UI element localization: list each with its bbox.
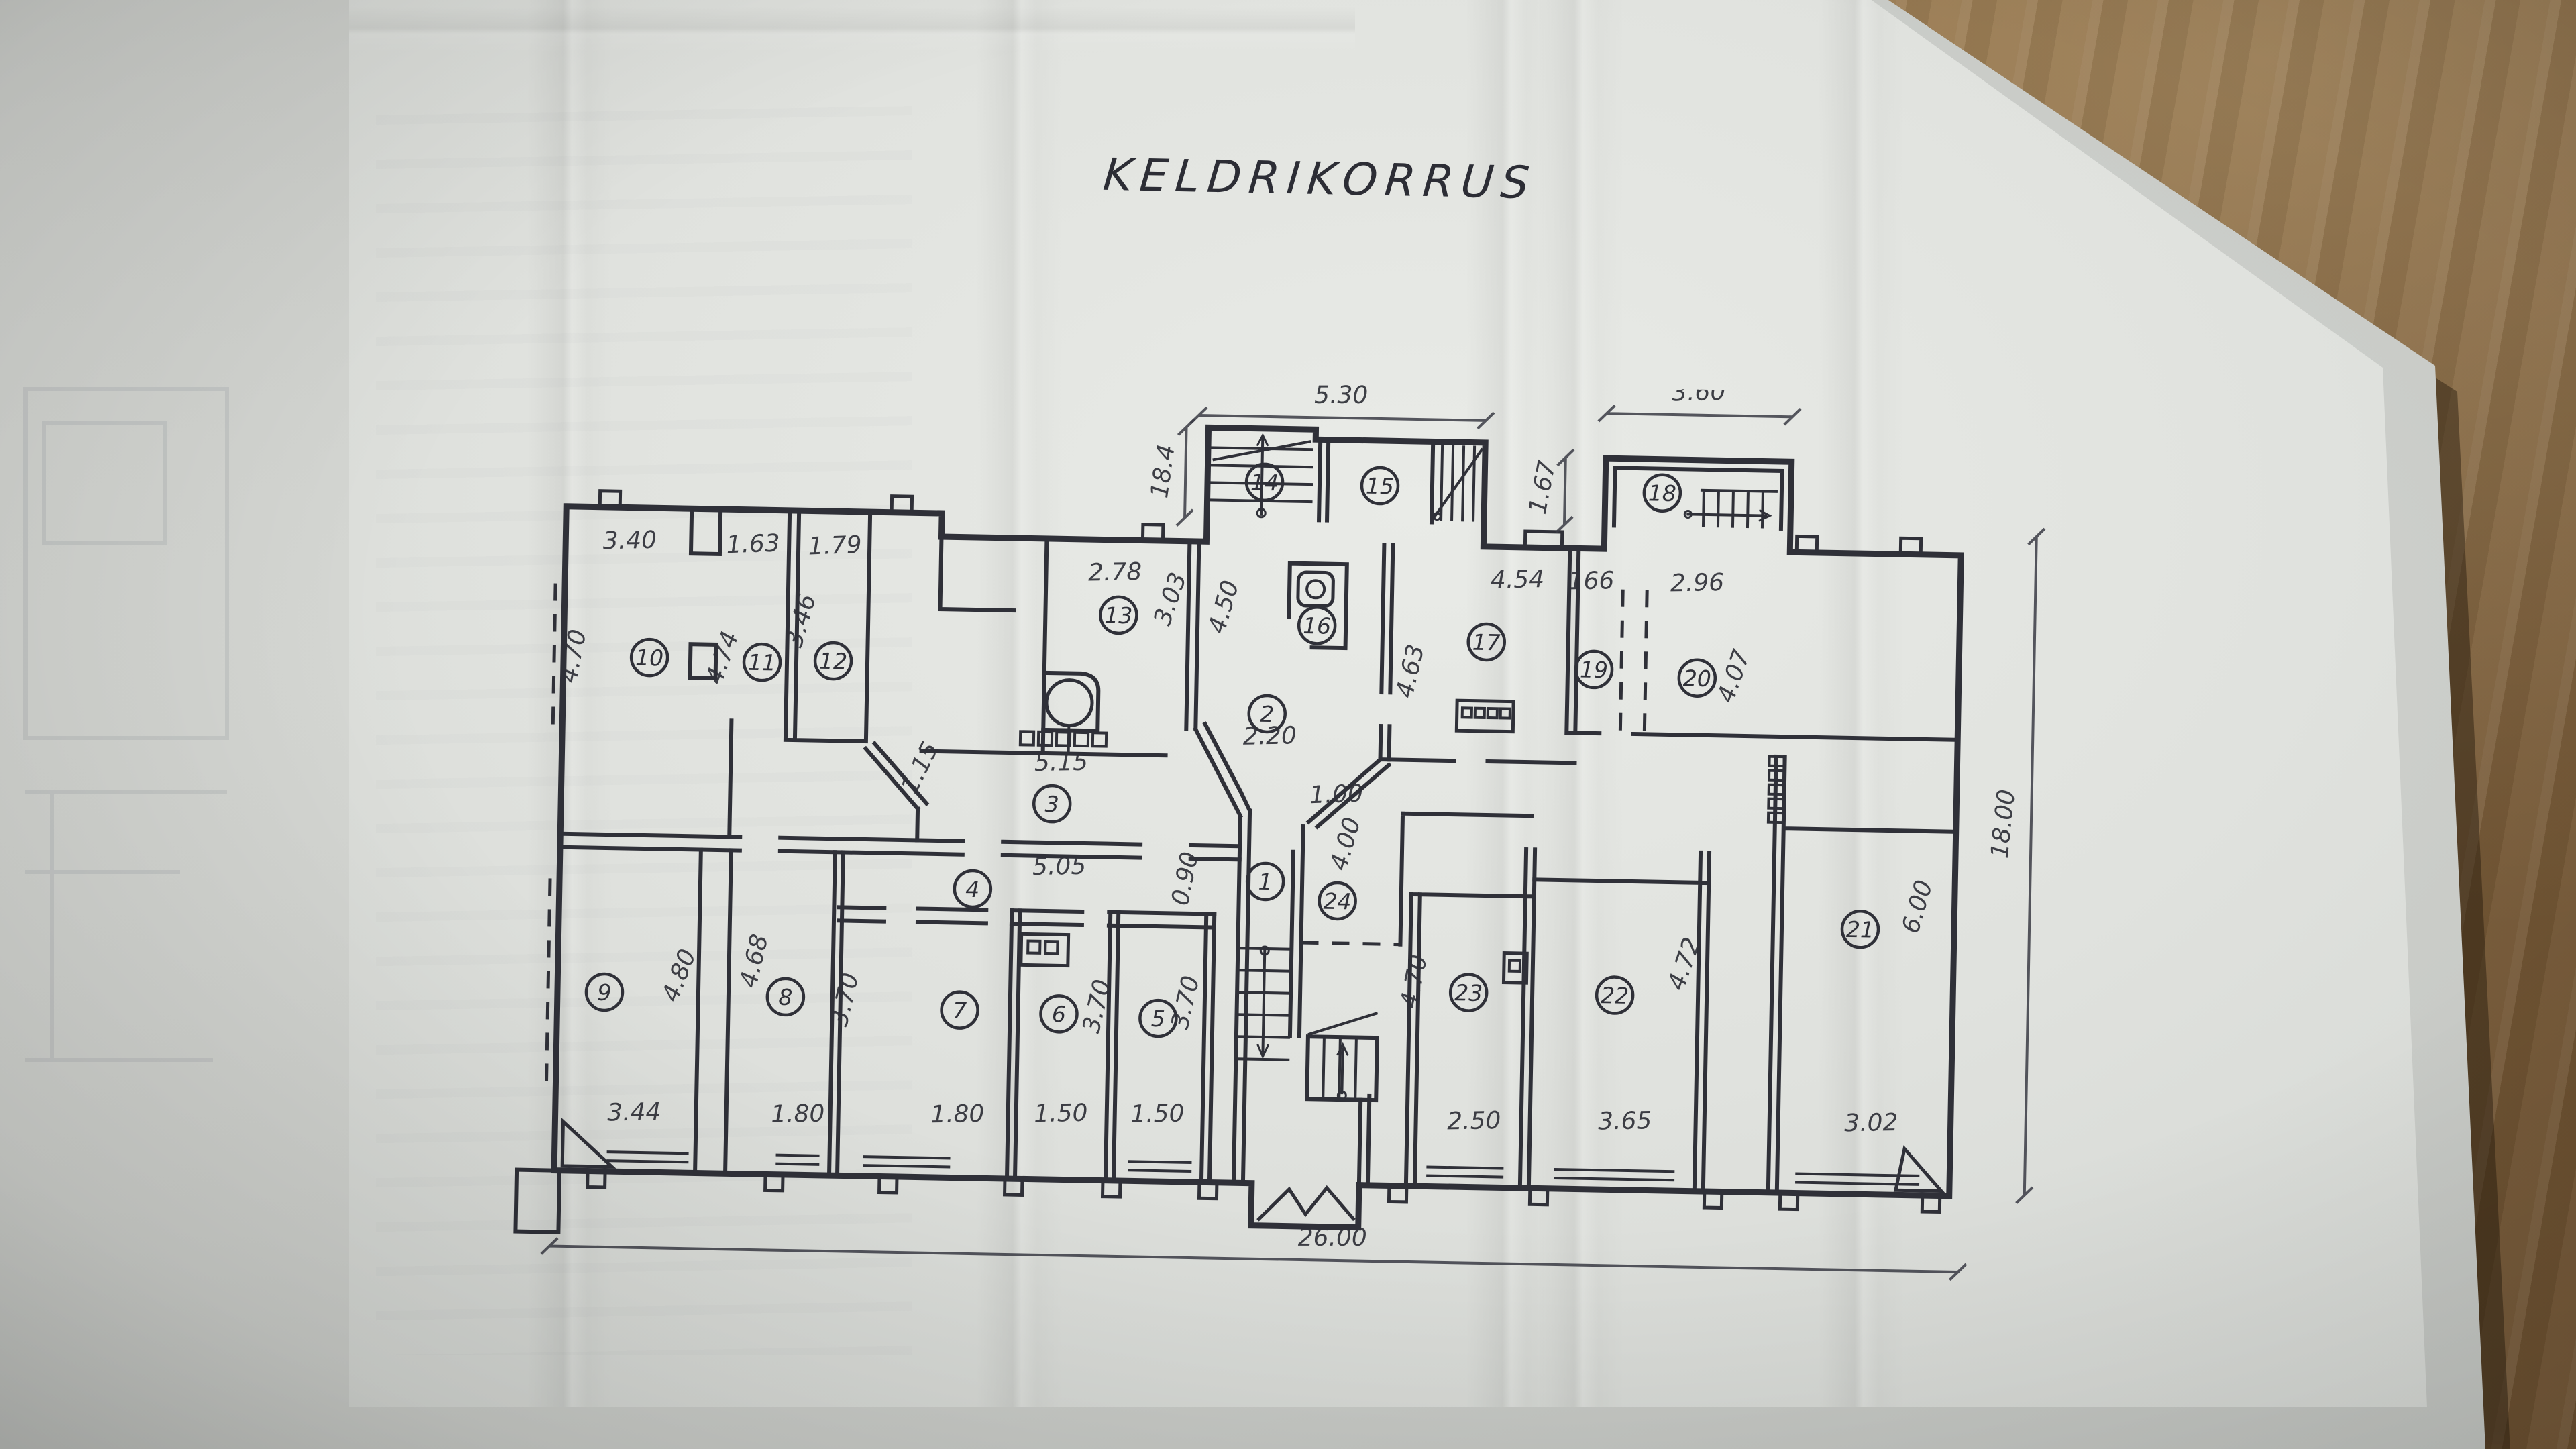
svg-text:4: 4: [965, 876, 980, 902]
dim-label-3.60: 3.60: [1672, 378, 1726, 407]
dim-label-4.70: 4.70: [555, 627, 592, 686]
photo-of-floor-plan: KELDRIKORRUS: [0, 0, 2576, 1449]
room-18-marker: 18: [1644, 474, 1680, 511]
room-6-marker: 6: [1040, 996, 1077, 1032]
under-sheet-ghost-drawing: [12, 362, 254, 1100]
dim-label-3.65: 3.65: [1598, 1107, 1652, 1135]
dim-label-2.50: 2.50: [1447, 1107, 1501, 1135]
dim-label-2.78: 2.78: [1088, 558, 1142, 586]
dim-label-5.30: 5.30: [1314, 382, 1368, 409]
svg-text:24: 24: [1323, 888, 1352, 915]
svg-text:8: 8: [778, 984, 793, 1010]
room-23-marker: 23: [1450, 974, 1487, 1011]
dim-label-3.40: 3.40: [602, 527, 657, 555]
svg-text:19: 19: [1580, 657, 1609, 684]
room-4-marker: 4: [954, 871, 991, 908]
svg-text:21: 21: [1846, 916, 1875, 943]
svg-text:17: 17: [1472, 629, 1501, 656]
dim-label-4.00: 4.00: [1325, 814, 1366, 873]
room-10-marker: 10: [631, 639, 668, 676]
svg-text:13: 13: [1104, 602, 1133, 629]
dim-label-2.20: 2.20: [1242, 722, 1297, 750]
drawing-title: KELDRIKORRUS: [1102, 149, 1539, 209]
dim-label-1.67: 1.67: [1524, 458, 1562, 517]
dim-label-0.90: 0.90: [1167, 850, 1204, 908]
room-11-marker: 11: [744, 644, 781, 681]
svg-text:5: 5: [1151, 1006, 1166, 1032]
dim-label-1.63: 1.63: [726, 530, 781, 559]
dim-label-2.96: 2.96: [1670, 569, 1725, 597]
room-14-marker: 14: [1246, 464, 1283, 500]
room-22-marker: 22: [1597, 977, 1633, 1014]
dim-label-4.80: 4.80: [657, 945, 702, 1006]
svg-text:7: 7: [953, 997, 967, 1023]
dim-label-4.07: 4.07: [1712, 647, 1756, 706]
dim-label-1.80: 1.80: [930, 1100, 985, 1128]
dim-label-4.74: 4.74: [701, 628, 745, 688]
dim-label-3.70: 3.70: [1167, 973, 1205, 1032]
room-15-marker: 15: [1362, 468, 1399, 504]
dim-label-1.00: 1.00: [1309, 780, 1364, 810]
svg-text:15: 15: [1366, 473, 1395, 500]
dim-label-4.54: 4.54: [1491, 566, 1545, 594]
room-24-marker: 24: [1319, 882, 1356, 919]
dimension-lines: [541, 386, 2047, 1281]
svg-text:22: 22: [1601, 982, 1629, 1009]
dim-label-4.50: 4.50: [1203, 578, 1245, 637]
room-8-marker: 8: [767, 978, 804, 1015]
dim-label-1.80: 1.80: [771, 1100, 825, 1128]
svg-text:20: 20: [1682, 665, 1711, 692]
room-1-marker: 1: [1247, 863, 1284, 900]
room-3-marker: 3: [1034, 786, 1071, 822]
room-12-marker: 12: [815, 643, 852, 680]
dim-label-3.44: 3.44: [607, 1098, 661, 1126]
svg-text:16: 16: [1303, 612, 1332, 639]
svg-text:14: 14: [1250, 469, 1279, 496]
room-20-marker: 20: [1678, 659, 1715, 696]
svg-text:6: 6: [1052, 1001, 1067, 1027]
dim-label-3.02: 3.02: [1844, 1109, 1898, 1137]
svg-text:3: 3: [1044, 791, 1059, 817]
dim-label-18.4: 18.4: [1146, 443, 1181, 500]
room-13-marker: 13: [1100, 596, 1137, 633]
svg-text:18: 18: [1648, 480, 1677, 506]
svg-text:11: 11: [748, 649, 777, 676]
room-21-marker: 21: [1842, 911, 1879, 948]
dim-label-4.70: 4.70: [1395, 953, 1433, 1011]
dim-label-26.00: 26.00: [1298, 1224, 1367, 1252]
paper-fold-crease-horizontal: [349, 7, 1355, 54]
dim-label-18.00: 18.00: [1986, 788, 2021, 860]
svg-text:12: 12: [819, 648, 848, 675]
dim-label-3.70: 3.70: [1077, 977, 1116, 1035]
svg-text:9: 9: [597, 979, 612, 1006]
dim-label-5.05: 5.05: [1032, 853, 1087, 881]
dim-label-1.50: 1.50: [1034, 1099, 1088, 1128]
dim-label-1.50: 1.50: [1130, 1099, 1185, 1128]
svg-text:10: 10: [635, 645, 664, 672]
room-19-marker: 19: [1576, 651, 1613, 688]
floor-plan-svg: 123456789101112131415161718192021222324 …: [484, 368, 2071, 1336]
dim-label-6.00: 6.00: [1897, 877, 1939, 936]
room-7-marker: 7: [941, 991, 978, 1028]
room-17-marker: 17: [1468, 623, 1505, 660]
svg-text:23: 23: [1454, 979, 1483, 1006]
room-9-marker: 9: [586, 973, 623, 1010]
dim-label-5.15: 5.15: [1034, 749, 1089, 777]
dim-label-4.63: 4.63: [1391, 642, 1430, 700]
dim-label-4.68: 4.68: [735, 932, 774, 990]
dim-label-1.15: 1.15: [896, 738, 945, 798]
svg-text:1: 1: [1258, 869, 1273, 895]
floor-plan-drawing: 123456789101112131415161718192021222324 …: [484, 368, 2071, 1336]
dim-label-3.03: 3.03: [1148, 569, 1192, 629]
room-16-marker: 16: [1299, 607, 1336, 644]
dim-label-166: 166: [1568, 567, 1614, 595]
dim-label-1.79: 1.79: [808, 531, 863, 561]
